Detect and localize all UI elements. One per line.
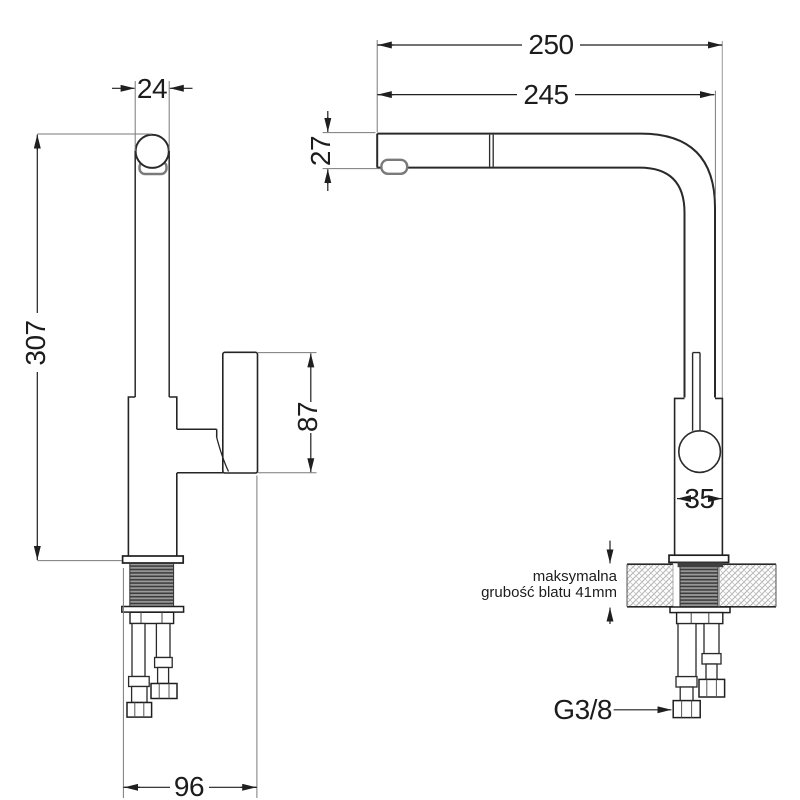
counter-thickness-note-line1: maksymalna: [467, 569, 617, 585]
dim-label-reach-spout: 245: [516, 80, 576, 109]
spout-outlet-circle: [136, 135, 169, 168]
side-view: [323, 40, 776, 718]
base-gasket: [678, 562, 724, 567]
thread-size-label: G3/8: [540, 695, 612, 724]
dim-label-reach-total: 250: [521, 30, 581, 59]
riser-pipe-front: [135, 151, 169, 397]
faucet-technical-drawing: 24 307 87 96 250 245 27 35 G3/8 maksymal…: [0, 0, 800, 800]
handle-side-view: [223, 352, 258, 473]
mounting-flange-front: [123, 556, 184, 563]
mounting-nut-front: [130, 612, 174, 623]
supply-hose-left-front: [127, 624, 152, 718]
front-view: [37, 81, 316, 798]
dim-label-spout-width: 24: [132, 74, 172, 103]
faucet-body-side: [675, 398, 723, 555]
supply-hose-right-front: [151, 624, 177, 699]
mounting-nut-side: [677, 613, 723, 624]
handle-ball-joint: [679, 431, 721, 473]
supply-hose-right-side: [699, 624, 725, 697]
dim-label-base-depth: 96: [167, 772, 211, 800]
threaded-shank-front: [130, 564, 174, 607]
dim-label-spout-height: 27: [306, 126, 334, 176]
threaded-shank-side: [680, 564, 718, 607]
counter-thickness-note: maksymalna grubość blatu 41mm: [467, 569, 617, 600]
handle-stub: [177, 429, 229, 473]
handle-lever-rod: [693, 353, 700, 431]
mounting-washer-front: [122, 607, 184, 613]
drawing-canvas: [0, 0, 800, 800]
supply-hose-left-side: [673, 624, 700, 718]
aerator-side: [381, 160, 407, 174]
dim-label-height: 307: [21, 308, 49, 378]
dim-label-body-width: 35: [679, 484, 720, 513]
counter-thickness-note-line2: grubość blatu 41mm: [467, 585, 617, 601]
spout-and-riser-outline: [377, 134, 715, 398]
dim-label-handle-length: 87: [293, 392, 321, 442]
faucet-body-front: [128, 397, 176, 557]
mounting-washer-side: [670, 607, 730, 613]
mounting-flange-side: [669, 555, 729, 562]
